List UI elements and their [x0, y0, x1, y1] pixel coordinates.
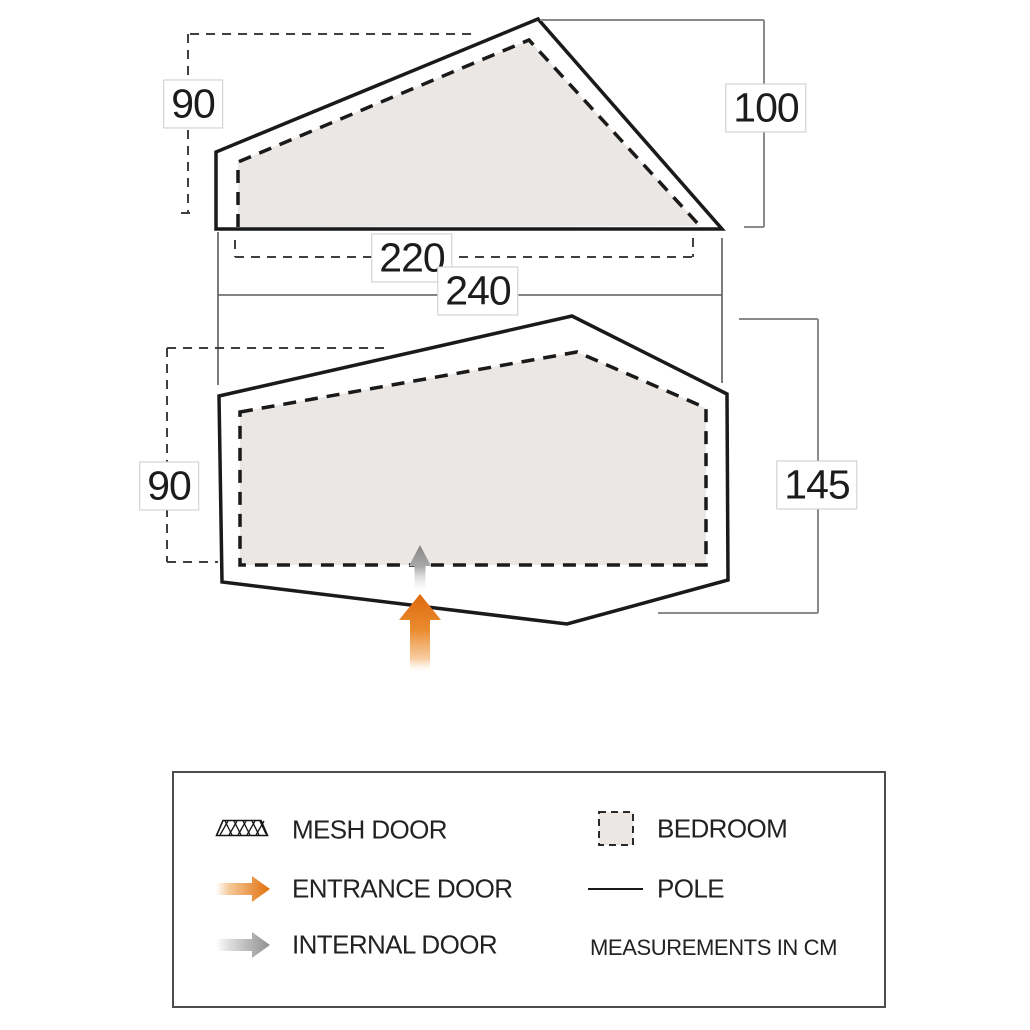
legend-label-internal-door: INTERNAL DOOR [292, 930, 497, 961]
floor-plan-dim-145-label: 145 [776, 460, 857, 509]
side-view [181, 19, 764, 385]
tent-dimensions-diagram: 90 100 220 240 90 145 MESH DOOR ENTRANCE… [0, 0, 1030, 1030]
floor-plan-dim-90-label: 90 [139, 461, 199, 510]
bedroom-swatch-icon [599, 812, 633, 845]
side-view-dim-240-label: 240 [437, 266, 518, 315]
floor-plan [167, 316, 818, 673]
legend-box [173, 772, 885, 1007]
side-view-dim-220-lines [235, 238, 693, 257]
legend-label-entrance-door: ENTRANCE DOOR [292, 874, 512, 905]
legend-label-bedroom: BEDROOM [657, 814, 787, 845]
legend-measurements-note: MEASUREMENTS IN CM [590, 935, 837, 961]
legend-border [173, 772, 885, 1007]
legend-label-pole: POLE [657, 874, 724, 905]
diagram-artwork [0, 0, 1030, 1030]
legend-label-mesh-door: MESH DOOR [292, 815, 447, 846]
side-view-dim-100-label: 100 [725, 83, 806, 132]
side-view-dim-90-label: 90 [163, 79, 223, 128]
